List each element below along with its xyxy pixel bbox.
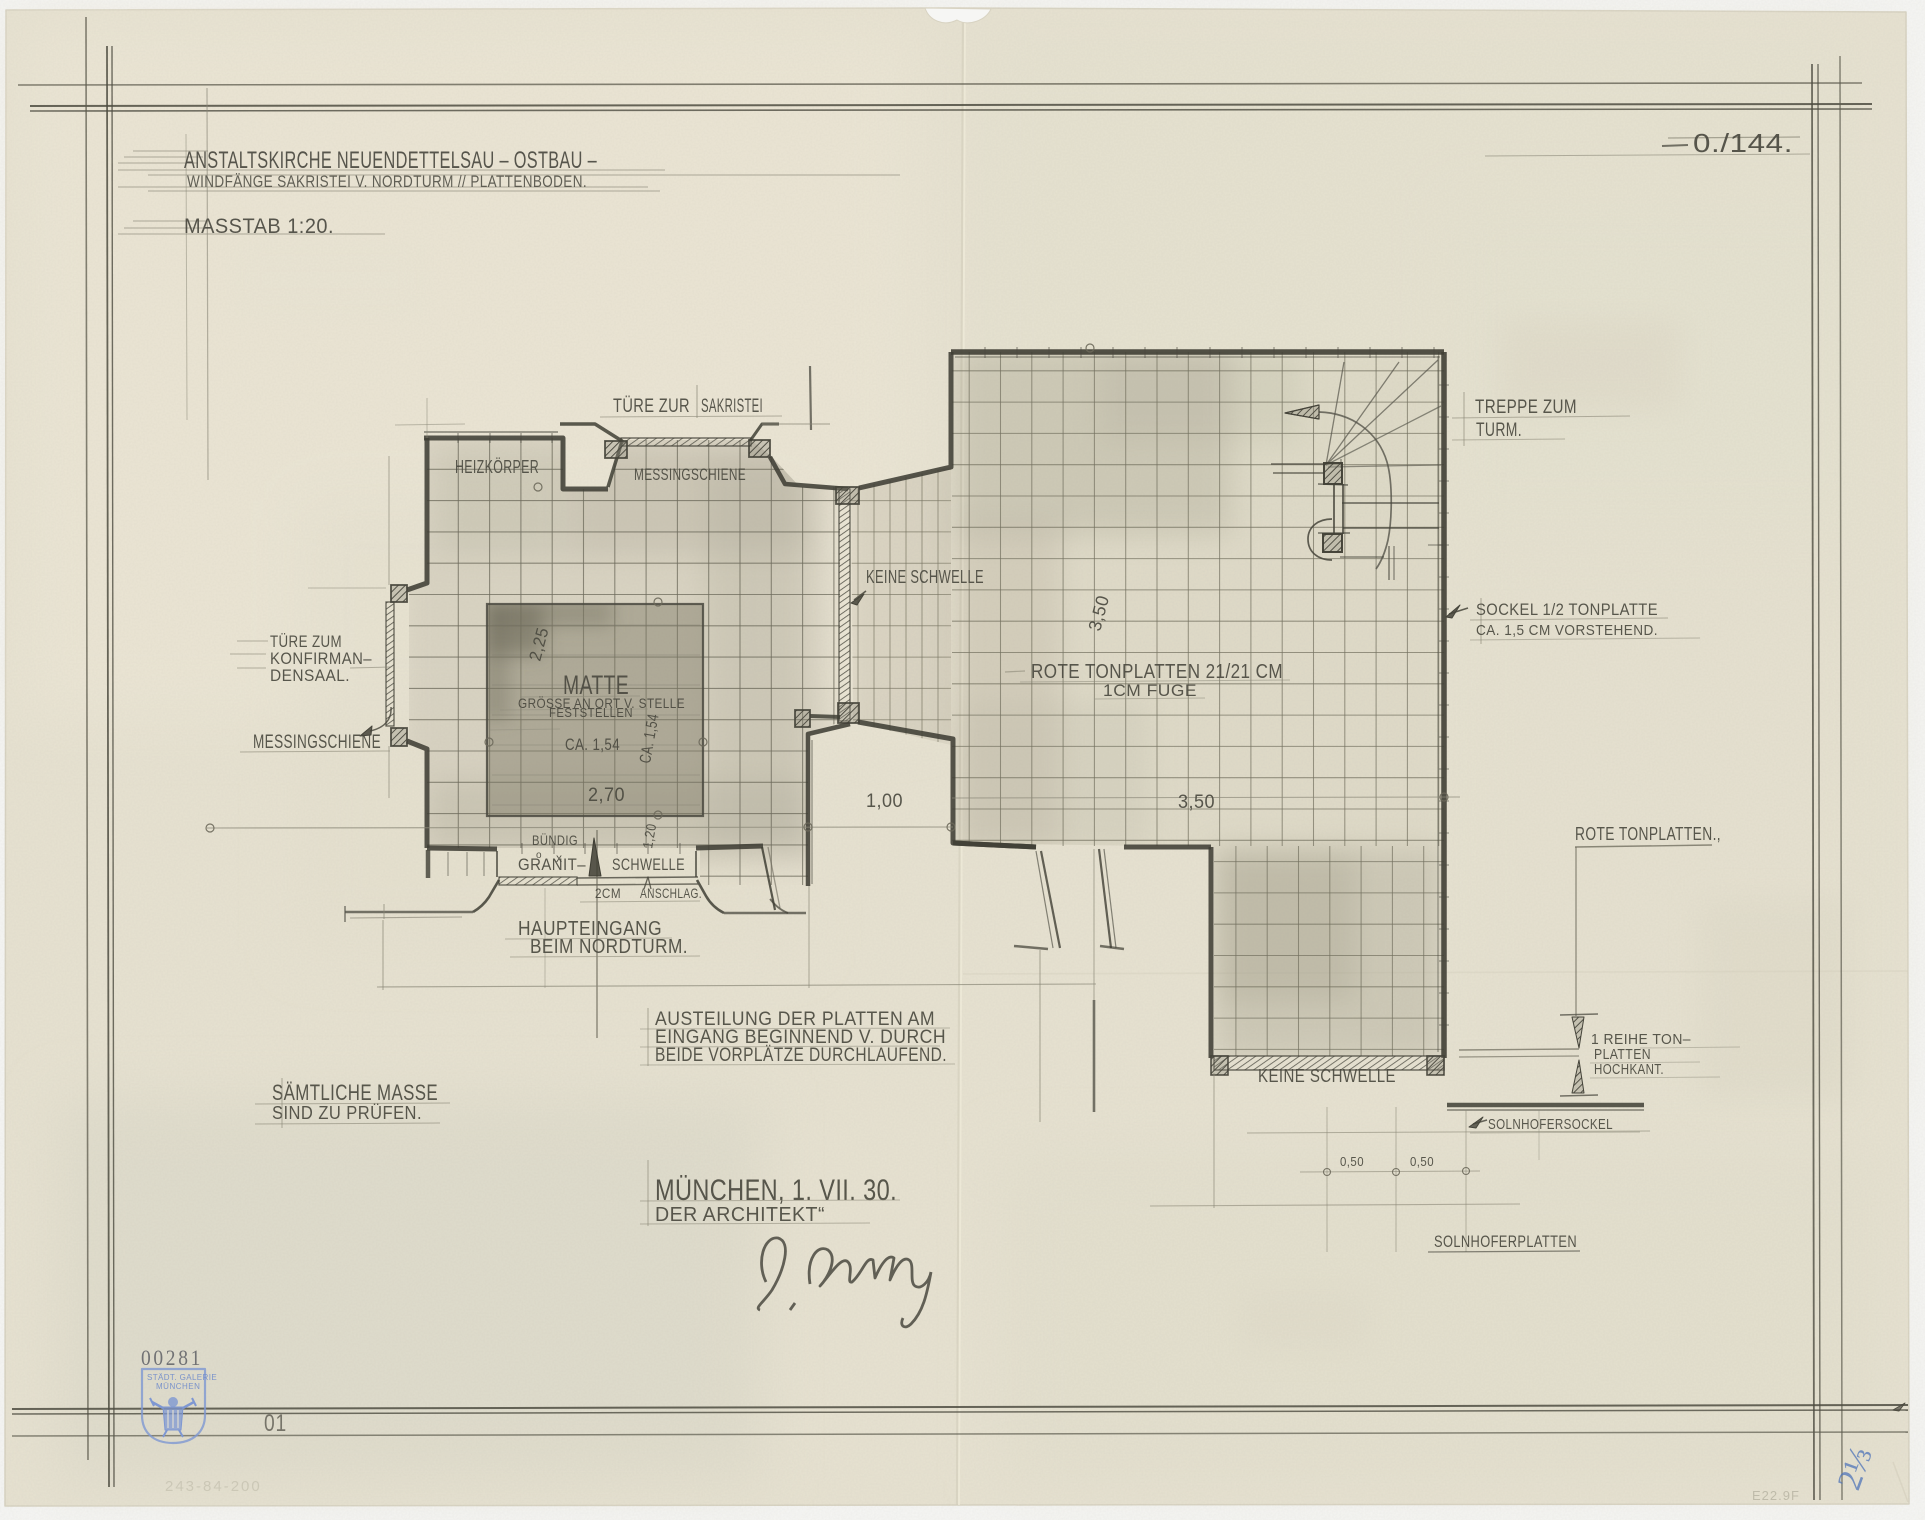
svg-text:1CM FUGE: 1CM FUGE — [1103, 681, 1197, 700]
svg-text:BÜNDIG: BÜNDIG — [532, 831, 578, 848]
svg-text:ANSTALTSKIRCHE NEUENDETTELSAU: ANSTALTSKIRCHE NEUENDETTELSAU – OSTBAU – — [184, 147, 597, 174]
svg-text:FESTSTELLEN: FESTSTELLEN — [549, 705, 633, 720]
svg-text:DENSAAL.: DENSAAL. — [270, 666, 350, 685]
svg-text:ANSCHLAG.: ANSCHLAG. — [640, 885, 702, 901]
svg-text:ROTE TONPLATTEN 21/21 CM: ROTE TONPLATTEN 21/21 CM — [1031, 661, 1283, 683]
svg-text:2,70: 2,70 — [588, 785, 625, 806]
svg-text:SOCKEL 1/2 TONPLATTE: SOCKEL 1/2 TONPLATTE — [1476, 600, 1658, 619]
svg-text:STÄDT. GALERIE: STÄDT. GALERIE — [147, 1373, 217, 1382]
svg-text:SÄMTLICHE MASSE: SÄMTLICHE MASSE — [272, 1080, 438, 1105]
svg-text:BEIDE VORPLÄTZE DURCHLAUFEND.: BEIDE VORPLÄTZE DURCHLAUFEND. — [655, 1045, 947, 1066]
svg-text:3,50: 3,50 — [1178, 792, 1215, 813]
svg-text:DER ARCHITEKT“: DER ARCHITEKT“ — [655, 1204, 825, 1226]
svg-text:SIND ZU PRÜFEN.: SIND ZU PRÜFEN. — [272, 1103, 422, 1123]
svg-text:E22.9F: E22.9F — [1752, 1488, 1800, 1503]
svg-text:WINDFÄNGE SAKRISTEI V. NORDTUR: WINDFÄNGE SAKRISTEI V. NORDTURM // PLATT… — [187, 172, 587, 191]
svg-text:MÜNCHEN: MÜNCHEN — [156, 1382, 200, 1391]
svg-text:CA. 1,5 CM VORSTEHEND.: CA. 1,5 CM VORSTEHEND. — [1476, 622, 1658, 639]
svg-text:00281: 00281 — [141, 1345, 203, 1370]
svg-text:01: 01 — [264, 1410, 287, 1437]
svg-text:SCHWELLE: SCHWELLE — [612, 855, 685, 874]
svg-text:HEIZKÖRPER: HEIZKÖRPER — [455, 457, 539, 477]
svg-text:2CM: 2CM — [595, 885, 621, 901]
svg-text:0./144.: 0./144. — [1693, 128, 1793, 158]
svg-text:243-84-200: 243-84-200 — [165, 1478, 262, 1495]
svg-text:SAKRISTEI: SAKRISTEI — [701, 396, 763, 417]
svg-text:CA. 1,54: CA. 1,54 — [565, 735, 620, 754]
svg-text:ROTE TONPLATTEN.,: ROTE TONPLATTEN., — [1575, 824, 1721, 844]
svg-text:MESSINGSCHIENE: MESSINGSCHIENE — [634, 465, 746, 484]
svg-text:MESSINGSCHIENE: MESSINGSCHIENE — [253, 732, 381, 753]
svg-text:TÜRE ZUR: TÜRE ZUR — [613, 396, 690, 417]
svg-text:1,00: 1,00 — [866, 791, 903, 812]
svg-text:MASSTAB 1:20.: MASSTAB 1:20. — [184, 215, 334, 238]
svg-text:MÜNCHEN, 1. VII. 30.: MÜNCHEN, 1. VII. 30. — [655, 1174, 897, 1207]
svg-text:HOCHKANT.: HOCHKANT. — [1594, 1061, 1664, 1078]
svg-text:0,50: 0,50 — [1410, 1154, 1434, 1169]
svg-text:GRANIT–: GRANIT– — [518, 855, 586, 874]
svg-text:SOLNHOFERSOCKEL: SOLNHOFERSOCKEL — [1488, 1116, 1613, 1133]
svg-text:TREPPE ZUM: TREPPE ZUM — [1475, 397, 1577, 418]
svg-text:SOLNHOFERPLATTEN: SOLNHOFERPLATTEN — [1434, 1232, 1577, 1251]
svg-text:KEINE SCHWELLE: KEINE SCHWELLE — [866, 567, 984, 587]
svg-text:0,50: 0,50 — [1340, 1154, 1364, 1169]
svg-text:TURM.: TURM. — [1476, 420, 1522, 441]
svg-text:BEIM NORDTURM.: BEIM NORDTURM. — [530, 936, 688, 958]
svg-text:KEINE SCHWELLE: KEINE SCHWELLE — [1258, 1066, 1396, 1086]
